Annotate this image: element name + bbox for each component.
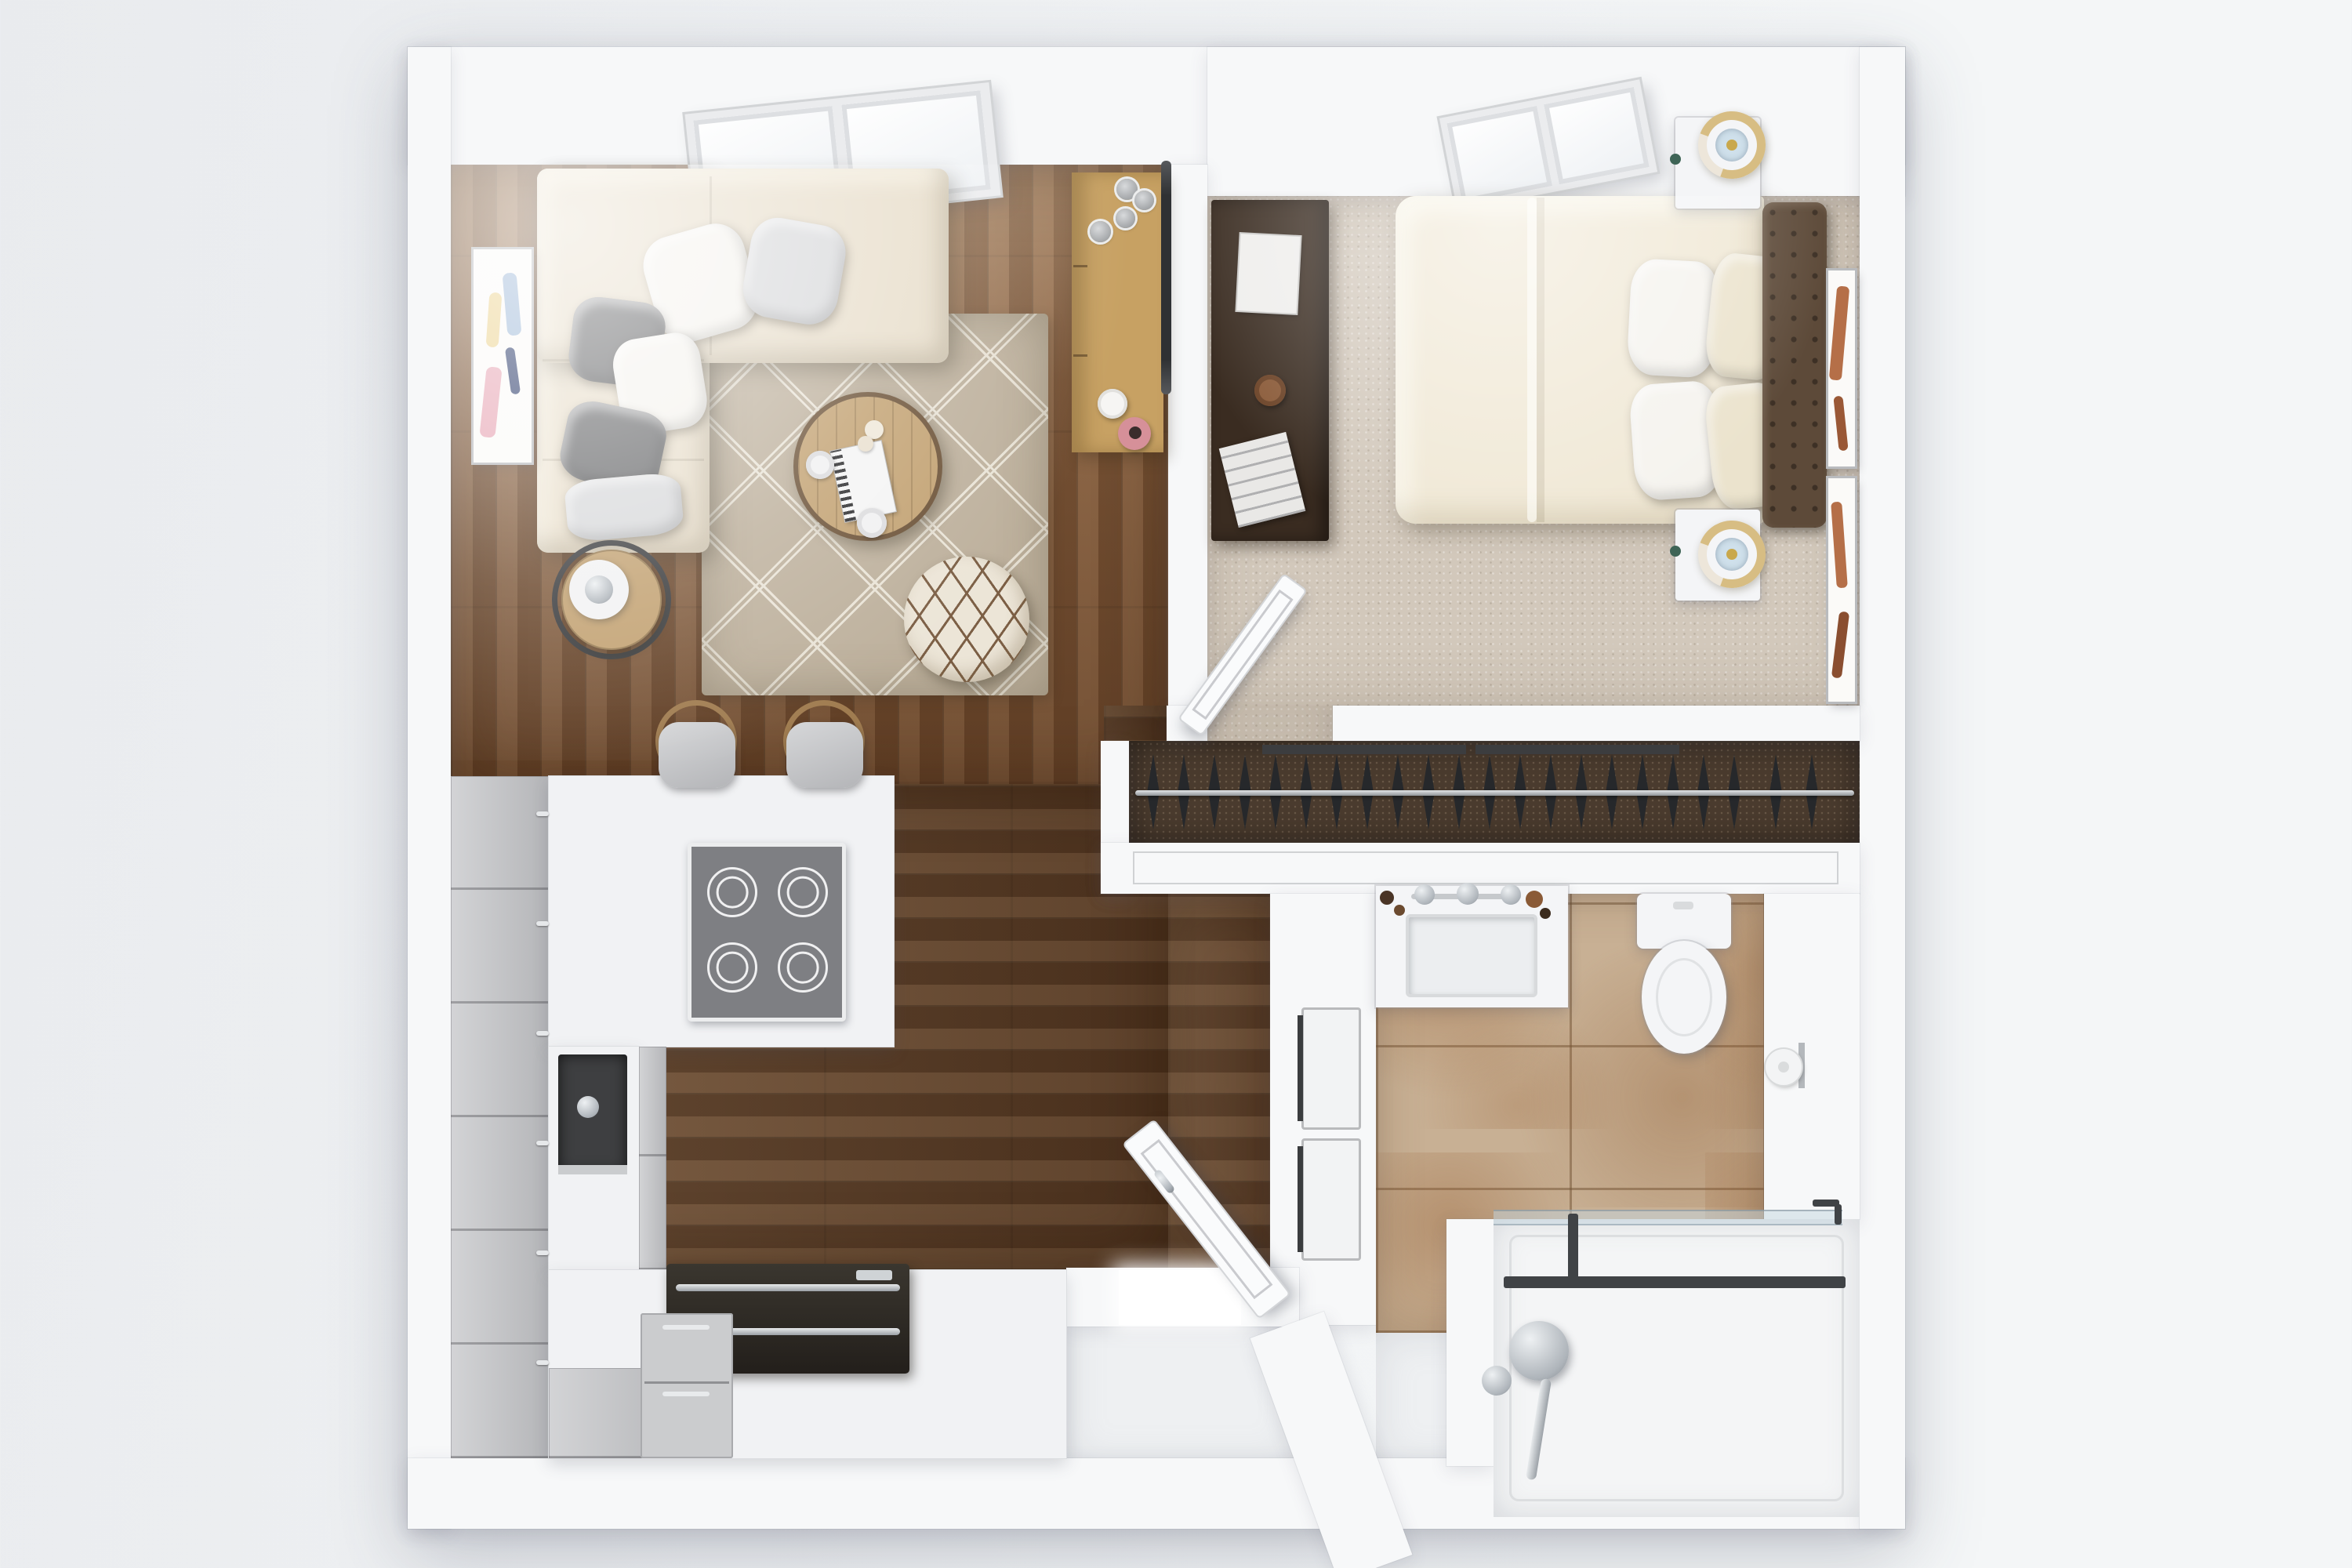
vanity-sink-basin <box>1406 914 1537 997</box>
cooktop-burner <box>707 942 757 993</box>
dishwasher-handle <box>662 1392 710 1396</box>
console-drawer-seam <box>1073 354 1087 357</box>
cooktop-burner-inner <box>717 952 749 984</box>
wall-living-bedroom-divider <box>1168 165 1207 706</box>
lamp-finial-bottom <box>1726 549 1737 560</box>
decor-pot <box>1116 209 1135 228</box>
skylight-pane <box>1544 87 1650 184</box>
desk-books <box>1236 234 1300 314</box>
headboard <box>1762 202 1827 528</box>
pink-vase-opening <box>1129 426 1142 439</box>
closet-front-groove <box>1133 851 1838 884</box>
console-drawer-seam <box>1073 265 1087 267</box>
art-stroke-blue <box>503 272 522 336</box>
decor-pot <box>1134 191 1154 210</box>
sink-faucet <box>577 1096 599 1118</box>
toilet-paper-core <box>1778 1062 1789 1073</box>
art-stroke-yellow <box>486 292 503 348</box>
wall-right <box>1860 47 1905 1529</box>
skylight-pane <box>1446 106 1552 203</box>
duvet-fold-shadow <box>1537 198 1544 522</box>
shower-door-handle <box>1568 1214 1578 1286</box>
wall-art-bedroom-2 <box>1828 478 1855 702</box>
closet-rod <box>1135 790 1854 796</box>
vanity-jar <box>1540 908 1551 919</box>
shower-drain-cap <box>1482 1366 1512 1396</box>
wall-bedroom-south <box>1333 706 1860 741</box>
lamp-finial-top <box>1726 140 1737 151</box>
bar-stool-seat <box>659 722 735 788</box>
vanity-faucet-spout <box>1457 883 1479 905</box>
shower-glass-bracket <box>1835 1204 1842 1225</box>
washer-dryer-front-upper <box>1301 1007 1361 1130</box>
vanity-jar <box>1526 891 1543 908</box>
cooktop-burner <box>707 867 757 917</box>
vanity-soap <box>1380 891 1394 905</box>
art-stroke-pink <box>479 366 502 438</box>
front-doorway-light <box>1119 1270 1241 1325</box>
washer-dryer-gap-lower <box>1298 1146 1303 1252</box>
art-stroke-rust <box>1833 396 1848 452</box>
cooktop-burner <box>778 867 828 917</box>
floor-pouf <box>904 557 1029 682</box>
shower-door-rail <box>1504 1276 1846 1288</box>
desk-cup <box>1254 375 1286 406</box>
kitchen-tall-cabinets <box>451 776 549 1458</box>
nightstand-knob <box>1670 154 1681 165</box>
cabinet-handle <box>536 811 549 816</box>
washer-dryer-gap-upper <box>1298 1015 1303 1121</box>
floor-plan <box>0 0 2352 1568</box>
wall-art-living <box>474 249 532 463</box>
kitchen-base-cabinets-east <box>639 1047 666 1270</box>
cabinet-handle <box>536 1031 549 1036</box>
toilet-flush-button <box>1673 902 1693 909</box>
cabinet-handle <box>536 1141 549 1145</box>
wall-art-bedroom-1 <box>1828 270 1855 466</box>
wall-shower-knee <box>1446 1219 1494 1466</box>
table-lamp-bulb <box>585 575 613 604</box>
bar-stool-seat <box>786 722 863 788</box>
cooktop-burner-inner <box>717 877 749 909</box>
saucer-cup <box>806 451 834 479</box>
cooktop <box>688 843 846 1022</box>
range-display <box>856 1270 892 1280</box>
closet-door-track <box>1262 745 1466 754</box>
washer-dryer-front-lower <box>1301 1138 1361 1261</box>
vanity-faucet-knob <box>1414 884 1435 905</box>
bedroom-doorway-floor <box>1207 706 1333 741</box>
shower-glass-panel <box>1494 1210 1842 1225</box>
dishwasher-handle <box>662 1325 710 1330</box>
cabinet-handle <box>536 1250 549 1255</box>
range-handle <box>676 1284 900 1291</box>
cooktop-burner <box>778 942 828 993</box>
dishwasher-seam <box>644 1381 729 1384</box>
vanity-faucet-knob <box>1501 884 1521 905</box>
dessert <box>858 436 873 452</box>
cooktop-burner-inner <box>787 952 819 984</box>
wall-left <box>408 47 451 1529</box>
art-stroke-rust <box>1831 612 1849 679</box>
toilet-seat-line <box>1656 958 1712 1036</box>
duvet-fold <box>1527 198 1537 522</box>
art-stroke-rust <box>1831 502 1848 589</box>
cabinet-handle <box>536 921 549 926</box>
decor-pot <box>1090 221 1111 242</box>
nightstand-knob <box>1670 546 1681 557</box>
sink-drainer <box>558 1165 627 1174</box>
bed-pillow <box>1626 258 1720 379</box>
cooktop-burner-inner <box>787 877 819 909</box>
saucer-cup <box>857 508 887 538</box>
shower-valve <box>1509 1321 1569 1381</box>
white-vase <box>1098 389 1127 419</box>
cabinet-handle <box>536 1360 549 1365</box>
wall-tv <box>1161 161 1171 394</box>
art-stroke-navy <box>505 347 521 394</box>
vanity-soap <box>1394 905 1405 916</box>
closet-door-track <box>1475 745 1679 754</box>
art-stroke-rust <box>1829 286 1849 381</box>
dishwasher <box>641 1313 733 1458</box>
